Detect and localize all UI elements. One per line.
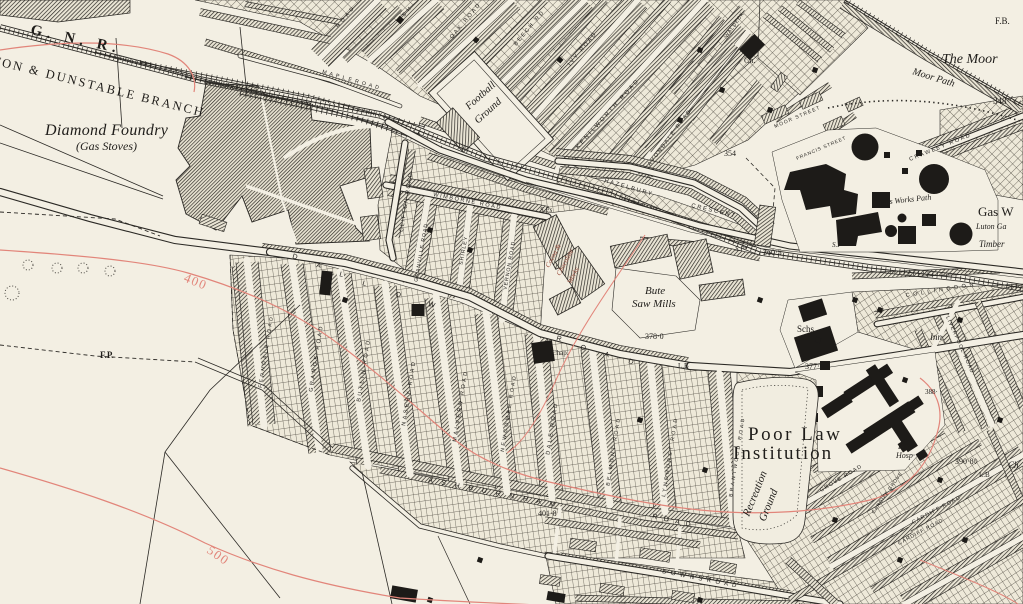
- svg-text:F.B.: F.B.: [995, 16, 1010, 26]
- svg-text:360·5: 360·5: [763, 248, 782, 257]
- svg-text:390·8◊: 390·8◊: [955, 457, 978, 466]
- svg-text:L.B: L.B: [979, 471, 990, 479]
- svg-text:Poor Law: Poor Law: [748, 424, 842, 445]
- svg-text:354: 354: [724, 149, 736, 158]
- svg-text:Diamond Foundry: Diamond Foundry: [44, 122, 169, 139]
- svg-text:L.B: L.B: [678, 362, 689, 370]
- svg-text:S.Ps: S.Ps: [540, 206, 553, 214]
- svg-text:S.Pⁿ: S.Pⁿ: [832, 241, 845, 249]
- svg-text:Ch: Ch: [1008, 460, 1019, 470]
- svg-text:Inn: Inn: [929, 332, 942, 342]
- svg-text:Ch.: Ch.: [744, 56, 755, 65]
- svg-text:Gas W: Gas W: [978, 204, 1014, 219]
- svg-text:Schs: Schs: [797, 324, 815, 334]
- svg-text:Saw Mills: Saw Mills: [632, 298, 676, 310]
- svg-text:Institution: Institution: [733, 443, 833, 464]
- svg-text:377·5: 377·5: [805, 362, 824, 371]
- svg-text:The Moor: The Moor: [942, 52, 998, 67]
- svg-text:Chap.: Chap.: [552, 349, 569, 357]
- svg-text:Bute: Bute: [898, 442, 913, 451]
- svg-text:401·8: 401·8: [538, 509, 557, 518]
- svg-text:348·: 348·: [993, 96, 1010, 106]
- svg-text:S.Pⁿ: S.Pⁿ: [735, 245, 748, 253]
- svg-text:Luton Ga: Luton Ga: [975, 222, 1006, 231]
- svg-text:(Gas Stoves): (Gas Stoves): [76, 139, 137, 153]
- svg-text:F.P.: F.P.: [100, 350, 114, 360]
- svg-text:Bute: Bute: [645, 285, 665, 297]
- svg-text:Hosp·: Hosp·: [895, 451, 915, 460]
- svg-text:388·: 388·: [925, 388, 938, 396]
- svg-text:Timber: Timber: [979, 239, 1005, 249]
- svg-text:378·0: 378·0: [645, 332, 664, 341]
